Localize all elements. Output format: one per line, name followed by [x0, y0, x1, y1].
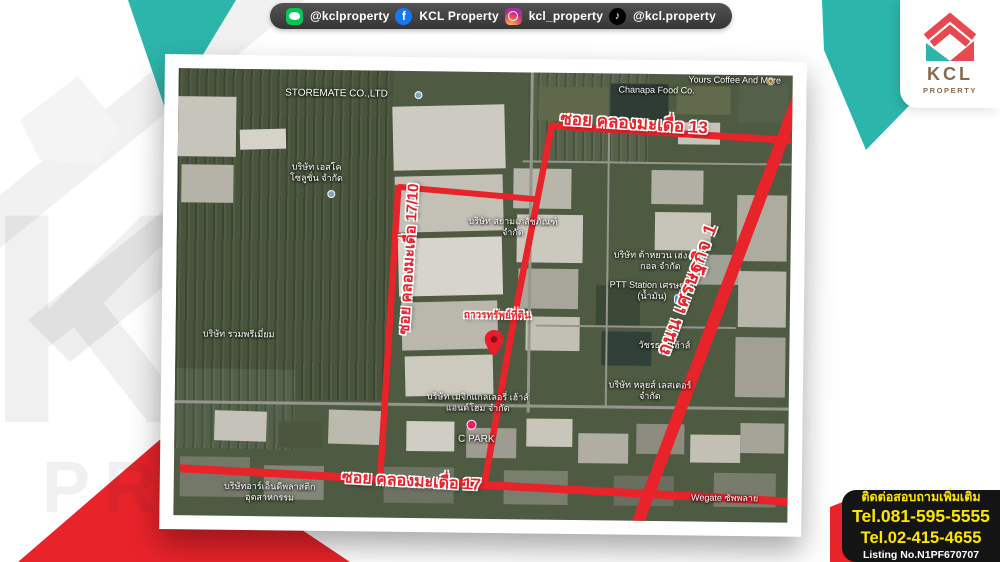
- logo-name: KCL: [927, 64, 973, 85]
- place-label: บริษัท สยามเภสัชภัณฑ์ จำกัด: [467, 216, 559, 239]
- contact-phone-1: Tel.081-595-5555: [852, 506, 990, 528]
- place-label: บริษัทอาร์เอ็นดีพลาสติก อุตสาหกรรม: [210, 481, 330, 504]
- facebook-icon: f: [395, 8, 412, 25]
- map-photo-frame: STOREMATE CO.,LTD Chanapa Food Co. Yours…: [159, 54, 807, 537]
- line-icon: [286, 8, 303, 25]
- contact-phone-2: Tel.02-415-4655: [861, 528, 982, 549]
- line-handle: @kclproperty: [310, 9, 389, 23]
- social-item-tiktok: ♪ @kcl.property: [609, 8, 716, 25]
- place-label: บริษัท เมจิกแกลเลอรี่ เฮ้าส์แอนด์โฮม จำก…: [423, 391, 533, 414]
- place-label: Wegate ซัพพลาย: [680, 492, 770, 504]
- place-label: Chanapa Food Co.: [607, 84, 707, 96]
- property-pin-label: ถาวรทรัพย์ที่ดิน: [464, 308, 531, 324]
- flyer-canvas: { "social_bar": { "items": [ {"platform"…: [0, 0, 1000, 562]
- kcl-house-logo-icon: [919, 13, 981, 63]
- social-item-facebook: f KCL Property: [395, 8, 499, 25]
- logo-card: KCL PROPERTY: [900, 0, 1000, 108]
- satellite-map: STOREMATE CO.,LTD Chanapa Food Co. Yours…: [173, 68, 792, 522]
- social-item-instagram: kcl_property: [505, 8, 603, 25]
- facebook-handle: KCL Property: [419, 9, 499, 23]
- place-label: Yours Coffee And More: [675, 74, 793, 86]
- place-label: STOREMATE CO.,LTD: [256, 87, 416, 101]
- property-location-pin-icon: [484, 330, 503, 357]
- tiktok-icon: ♪: [609, 8, 626, 25]
- gray-logo-mark-watermark: [20, 76, 120, 164]
- place-label: บริษัท รวมพรีเมี่ยม: [194, 328, 284, 340]
- contact-heading: ติดต่อสอบถามเพิ่มเติม: [861, 490, 980, 506]
- instagram-handle: kcl_property: [529, 9, 603, 23]
- poi-pin-icon: [327, 190, 335, 198]
- contact-box: ติดต่อสอบถามเพิ่มเติม Tel.081-595-5555 T…: [842, 490, 1000, 562]
- instagram-icon: [505, 8, 522, 25]
- tiktok-handle: @kcl.property: [633, 9, 716, 23]
- place-label: บริษัท หลุยส์ เลสเตอร์ จำกัด: [605, 379, 695, 402]
- place-label: บริษัท เอสโค โซลูชั่น จำกัด: [277, 161, 355, 184]
- social-item-line: @kclproperty: [286, 8, 389, 25]
- social-bar: @kclproperty f KCL Property kcl_property…: [270, 3, 732, 29]
- place-label: C PARK: [446, 433, 506, 446]
- contact-listing-number: Listing No.N1PF670707: [863, 549, 979, 562]
- logo-tagline: PROPERTY: [923, 86, 977, 95]
- cpark-pin-icon: [466, 420, 476, 430]
